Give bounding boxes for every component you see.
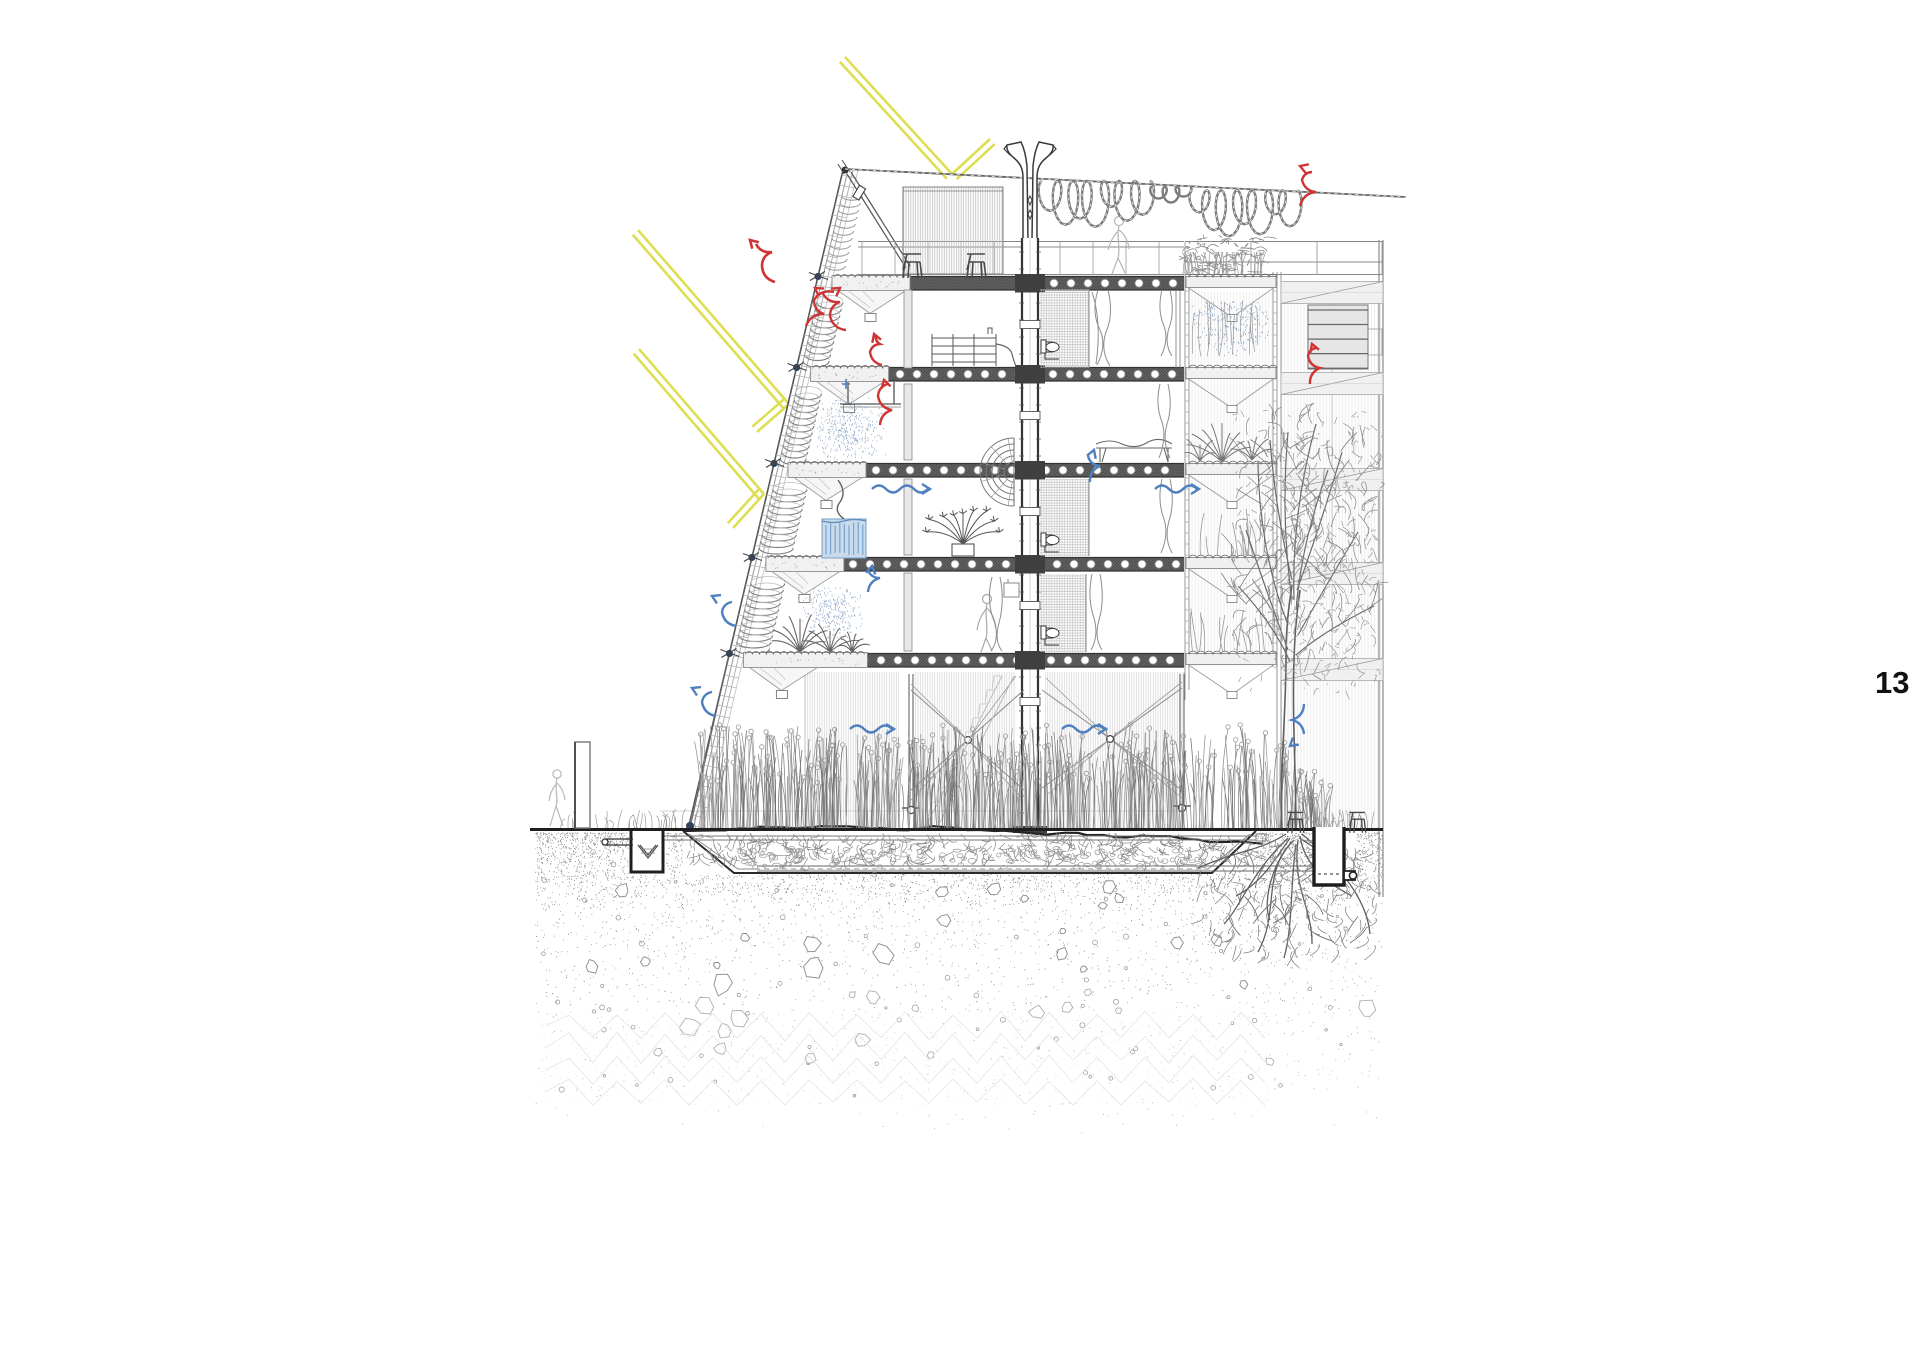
svg-text:13: 13 [1875, 665, 1909, 700]
